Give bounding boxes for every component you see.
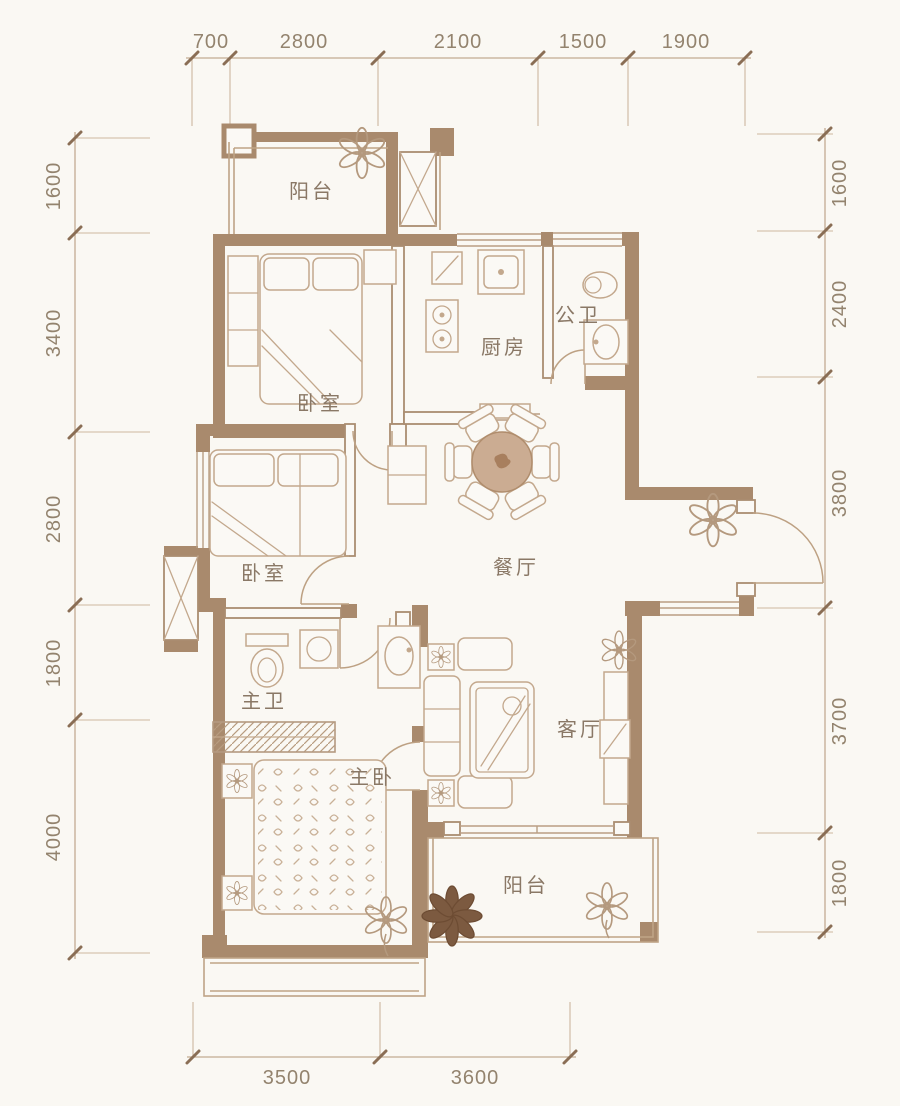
dimension-chain-right: 1600 2400 3800 3700 1800 <box>757 128 851 938</box>
label-guest-bath: 公卫 <box>555 305 601 327</box>
floor-plan-sheet: 700 2800 2100 1500 1900 1600 3400 2800 1… <box>0 0 900 1106</box>
ac-shaft <box>400 152 440 230</box>
dim-left-3400: 3400 <box>43 309 65 358</box>
dim-top-700: 700 <box>193 31 229 53</box>
label-dining: 餐厅 <box>493 556 539 579</box>
dim-left-1600: 1600 <box>43 162 65 211</box>
dim-top-2100: 2100 <box>434 31 483 53</box>
dim-left-1800: 1800 <box>43 639 65 688</box>
label-master-bedroom: 主卧 <box>349 766 395 789</box>
plant-entry <box>687 494 738 547</box>
dim-right-2400: 2400 <box>829 280 851 329</box>
dim-top-1900: 1900 <box>662 31 711 53</box>
hall-cabinet <box>388 446 426 504</box>
kitchen-furniture <box>426 250 530 418</box>
label-bedroom-mid: 卧室 <box>241 562 287 585</box>
dimension-chain-bottom: 3500 3600 <box>187 1002 576 1089</box>
dining-table <box>445 403 559 521</box>
plant-balcony-dark <box>422 886 482 946</box>
dim-left-4000: 4000 <box>43 813 65 862</box>
dim-right-1800: 1800 <box>829 859 851 908</box>
bay-strip-bottom <box>204 958 425 996</box>
dim-bottom-3600: 3600 <box>451 1067 500 1089</box>
dim-right-1600: 1600 <box>829 159 851 208</box>
dim-left-2800: 2800 <box>43 495 65 544</box>
dim-bottom-3500: 3500 <box>263 1067 312 1089</box>
dim-top-1500: 1500 <box>559 31 608 53</box>
label-master-bath: 主卫 <box>241 690 287 713</box>
label-balcony-top: 阳台 <box>289 180 335 203</box>
label-kitchen: 厨房 <box>481 336 527 359</box>
floor-plan-drawing: 700 2800 2100 1500 1900 1600 3400 2800 1… <box>0 0 900 1106</box>
master-wardrobe <box>213 722 335 752</box>
dimension-chain-left: 1600 3400 2800 1800 4000 <box>43 132 150 959</box>
elevator-shaft <box>164 556 198 640</box>
dimension-chain-top: 700 2800 2100 1500 1900 <box>186 31 751 126</box>
label-living: 客厅 <box>557 718 603 741</box>
label-balcony-bottom: 阳台 <box>503 874 549 897</box>
dim-top-2800: 2800 <box>280 31 329 53</box>
bedroom-top-furniture <box>228 250 396 404</box>
dim-right-3700: 3700 <box>829 697 851 746</box>
plant-balcony-light <box>585 883 630 938</box>
bedroom-mid-furniture <box>210 450 346 556</box>
dim-right-3800: 3800 <box>829 469 851 518</box>
master-bath-fixtures <box>246 626 420 688</box>
label-bedroom-top: 卧室 <box>297 392 343 415</box>
